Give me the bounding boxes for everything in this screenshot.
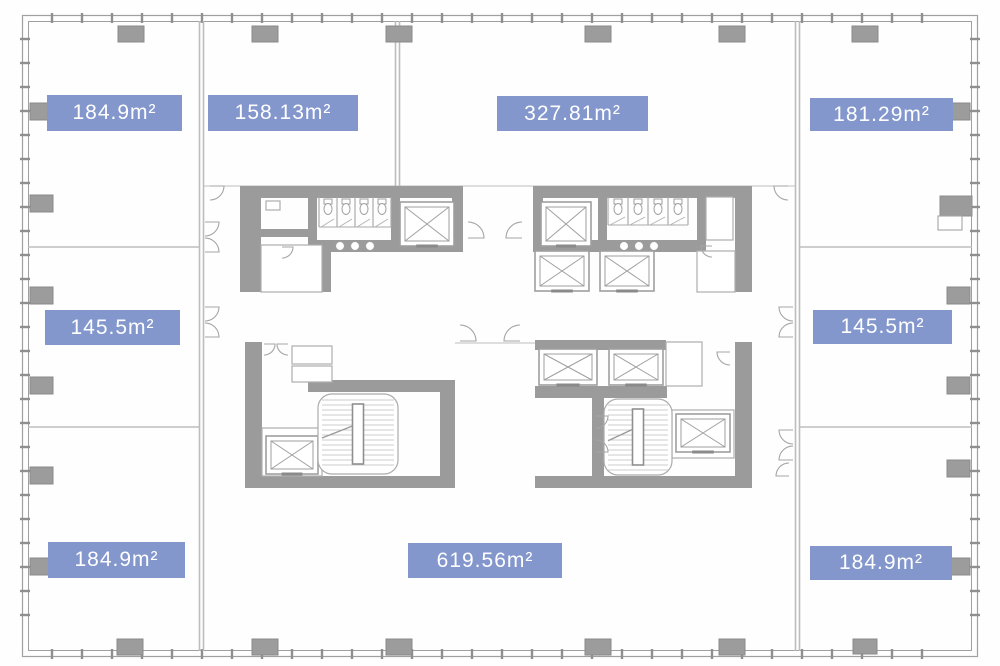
door-swing-icon — [779, 307, 793, 321]
area-label-mid-right: 145.5m² — [813, 310, 952, 344]
door-swing-icon — [504, 325, 520, 341]
door-swing-icon — [779, 430, 793, 444]
sink-icon — [351, 242, 360, 251]
area-label-top-right: 181.29m² — [810, 98, 953, 131]
door-swing-icon — [205, 323, 219, 337]
door-swing-icon — [779, 323, 793, 337]
floor-plan-canvas: 184.9m²158.13m²327.81m²181.29m²145.5m²14… — [0, 0, 1000, 666]
door-swing-icon — [717, 352, 730, 365]
column — [719, 639, 745, 655]
door-swing-icon — [779, 446, 793, 460]
service-room — [697, 251, 735, 292]
sink-icon — [635, 242, 644, 251]
sink-icon — [336, 242, 345, 251]
column — [30, 287, 53, 304]
area-label-top-center: 327.81m² — [497, 96, 648, 131]
door-swing-icon — [277, 344, 288, 355]
toilet-icon — [357, 199, 370, 227]
column — [386, 639, 412, 655]
service-room — [292, 366, 332, 382]
service-room — [292, 346, 332, 364]
area-label-top-left: 184.9m² — [47, 95, 182, 131]
staircase-symbol — [318, 394, 398, 474]
sink-icon — [366, 242, 375, 251]
column — [30, 195, 53, 212]
toilet-areas — [319, 197, 688, 227]
service-room — [666, 342, 702, 386]
door-swing-icon — [205, 222, 219, 236]
area-label-bottom-center: 619.56m² — [408, 543, 562, 578]
service-room — [706, 197, 733, 240]
column — [947, 377, 970, 394]
service-room — [266, 201, 280, 210]
toilet-icon — [630, 199, 645, 225]
elevator-symbol — [541, 202, 591, 246]
door-swing-icon — [506, 222, 522, 238]
area-label-top-second: 158.13m² — [208, 95, 358, 131]
area-label-mid-left: 145.5m² — [45, 310, 180, 345]
door-swing-icon — [776, 463, 789, 476]
column — [585, 639, 611, 655]
column — [30, 377, 53, 394]
elevator-symbol — [539, 349, 597, 385]
staircase-symbol — [604, 399, 672, 475]
column — [852, 26, 878, 42]
toilet-icon — [321, 199, 334, 227]
toilet-icon — [650, 199, 665, 225]
sink-icon — [620, 242, 629, 251]
toilet-icon — [610, 199, 625, 225]
elevator-symbol — [676, 414, 730, 452]
toilet-icon — [339, 199, 352, 227]
toilet-stalls — [319, 197, 391, 227]
door-swing-icon — [210, 186, 224, 200]
staircases — [318, 394, 672, 475]
door-swing-icon — [468, 222, 484, 238]
column — [118, 26, 144, 42]
elevator-symbol — [609, 349, 663, 385]
column — [386, 26, 412, 42]
column — [252, 26, 278, 42]
right-wall-shaft — [938, 196, 972, 230]
column — [719, 26, 745, 42]
column — [947, 287, 970, 304]
door-swing-icon — [205, 238, 219, 252]
toilet-icon — [375, 199, 388, 227]
area-label-bottom-left: 184.9m² — [48, 542, 185, 578]
column — [117, 639, 143, 655]
door-swing-icon — [264, 344, 275, 355]
toilet-icon — [670, 199, 685, 225]
elevator-symbol — [266, 436, 318, 474]
toilet-stalls — [608, 197, 688, 225]
elevator-symbol — [400, 202, 454, 246]
column — [585, 26, 611, 42]
sink-icon — [650, 242, 659, 251]
elevator-symbol — [535, 251, 589, 291]
column — [853, 639, 877, 654]
column — [252, 639, 278, 655]
column — [30, 467, 53, 484]
column — [947, 460, 970, 477]
area-label-bottom-right: 184.9m² — [810, 546, 952, 580]
door-swing-icon — [460, 325, 476, 341]
door-swing-icon — [205, 307, 219, 321]
door-swing-icon — [774, 186, 788, 200]
elevator-symbol — [600, 251, 654, 291]
